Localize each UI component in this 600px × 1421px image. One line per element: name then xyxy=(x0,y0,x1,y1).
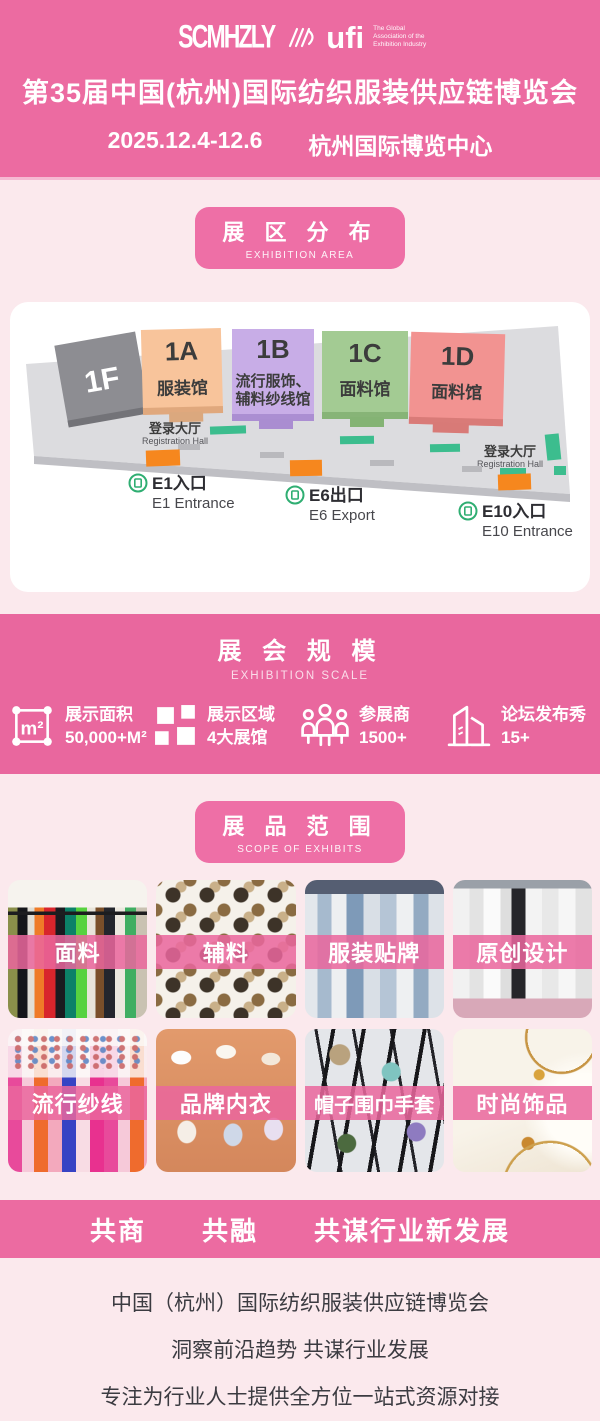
stat-text: 参展商 1500+ xyxy=(359,703,410,749)
header-banner: SCMHZLY ufi The Global Association of th… xyxy=(0,0,600,180)
svg-text:面料馆: 面料馆 xyxy=(340,379,391,399)
floor-map: 1F 1A 服装馆 1B 流行服饰、 辅料纱线馆 1C 面料馆 xyxy=(10,302,590,592)
hall-1d: 1D 面料馆 xyxy=(409,332,506,434)
svg-text:面料馆: 面料馆 xyxy=(431,381,483,402)
forum-shows-icon xyxy=(446,703,492,749)
exhibit-tile-fashion-jewelry: 时尚饰品 xyxy=(453,1029,592,1172)
ufi-logo: ufi xyxy=(326,22,364,53)
tile-label: 原创设计 xyxy=(453,935,592,969)
exhibit-tiles-grid: 面料 辅料 服装贴牌 原创设计 流行纱线 品牌内衣 帽子围巾手套 时尚饰品 xyxy=(0,880,600,1172)
svg-text:登录大厅: 登录大厅 xyxy=(148,421,201,436)
svg-text:1F: 1F xyxy=(82,361,122,400)
svg-text:流行服饰、: 流行服饰、 xyxy=(235,372,310,390)
e1-gate-icon xyxy=(130,475,147,492)
exhibit-tile-fabric: 面料 xyxy=(8,880,147,1018)
stat-text: 论坛发布秀 15+ xyxy=(501,703,586,749)
area-measure-icon: m² xyxy=(8,702,56,750)
date-venue-row: 2025.12.4-12.6 杭州国际博览中心 xyxy=(0,127,600,161)
exhibitors-icon xyxy=(300,702,350,750)
section-title-en: SCOPE OF EXHIBITS xyxy=(222,844,377,855)
stat-label: 展示面积 xyxy=(65,703,147,726)
swoosh-icon xyxy=(287,25,317,49)
tile-label: 品牌内衣 xyxy=(156,1086,295,1120)
e1-entrance-marker xyxy=(146,449,181,466)
stat-value: 4大展馆 xyxy=(207,726,275,749)
ufi-tagline-line1: The Global xyxy=(373,25,426,33)
stat-exhibit-area: m² 展示面积 50,000+M² xyxy=(8,702,154,750)
svg-text:E10入口: E10入口 xyxy=(482,502,546,521)
slogan-banner: 共商 共融 共谋行业新发展 xyxy=(0,1200,600,1258)
tile-label: 面料 xyxy=(8,935,147,969)
scale-title-en: EXHIBITION SCALE xyxy=(0,670,600,682)
tile-label: 服装贴牌 xyxy=(305,935,444,969)
exhibition-halls-icon xyxy=(154,704,198,748)
svg-text:E1入口: E1入口 xyxy=(152,474,207,493)
ufi-tagline-line2: Association of the xyxy=(373,33,426,41)
svg-text:1B: 1B xyxy=(256,334,289,364)
stat-exhibitors: 参展商 1500+ xyxy=(300,702,446,750)
svg-text:E1 Entrance: E1 Entrance xyxy=(152,495,235,512)
registration-hall-right: 登录大厅 Registration Hall xyxy=(477,444,543,469)
expo-dates: 2025.12.4-12.6 xyxy=(108,127,263,161)
svg-text:Registration Hall: Registration Hall xyxy=(477,459,543,469)
svg-text:1C: 1C xyxy=(348,338,381,368)
hall-1f: 1F xyxy=(54,332,149,428)
hall-1c: 1C 面料馆 xyxy=(322,331,408,427)
exhibit-tile-hats-scarves-gloves: 帽子围巾手套 xyxy=(305,1029,444,1172)
svg-text:m²: m² xyxy=(21,717,44,738)
svg-text:辅料纱线馆: 辅料纱线馆 xyxy=(235,390,310,408)
ufi-tagline-line3: Exhibition Industry xyxy=(373,41,426,49)
section-title-cn: 展 品 范 围 xyxy=(222,809,377,841)
scmhzly-logo: SCMHZLY xyxy=(178,18,274,56)
svg-text:服装馆: 服装馆 xyxy=(157,377,209,398)
expo-venue: 杭州国际博览中心 xyxy=(308,127,492,161)
section-badge-exhibition-area: 展 区 分 布 EXHIBITION AREA xyxy=(195,207,404,269)
section-title-cn: 展 区 分 布 xyxy=(222,215,377,247)
footer-line-3: 专注为行业人士提供全方位一站式资源对接 xyxy=(0,1374,600,1421)
ufi-tagline: The Global Association of the Exhibition… xyxy=(373,25,426,49)
stat-forums: 论坛发布秀 15+ xyxy=(446,703,592,749)
exhibit-tile-accessories: 辅料 xyxy=(156,880,295,1018)
stat-value: 50,000+M² xyxy=(65,726,147,749)
svg-text:E6 Export: E6 Export xyxy=(309,507,376,524)
e10-gate-icon xyxy=(460,503,477,520)
stat-label: 展示区域 xyxy=(207,703,275,726)
e10-entrance-marker xyxy=(498,473,532,490)
svg-text:E6出口: E6出口 xyxy=(309,485,364,505)
logo-row: SCMHZLY ufi The Global Association of th… xyxy=(0,16,600,58)
tile-label: 时尚饰品 xyxy=(453,1086,592,1120)
exhibit-tile-garment-oem: 服装贴牌 xyxy=(305,880,444,1018)
stat-label: 参展商 xyxy=(359,703,410,726)
tile-label: 辅料 xyxy=(156,935,295,969)
stat-label: 论坛发布秀 xyxy=(501,703,586,726)
scale-title-cn: 展 会 规 模 xyxy=(0,631,600,666)
expo-title: 第35届中国(杭州)国际纺织服装供应链博览会 xyxy=(0,71,600,110)
e1-entrance-label: E1入口 E1 Entrance xyxy=(130,474,235,512)
e6-exit-label: E6出口 E6 Export xyxy=(287,485,376,524)
stat-text: 展示面积 50,000+M² xyxy=(65,703,147,749)
exhibit-tile-brand-underwear: 品牌内衣 xyxy=(156,1029,295,1172)
exhibit-tile-fashion-yarn: 流行纱线 xyxy=(8,1029,147,1172)
exhibit-tile-original-design: 原创设计 xyxy=(453,880,592,1018)
registration-hall-left: 登录大厅 Registration Hall xyxy=(142,421,208,446)
e6-exit-marker xyxy=(290,460,322,477)
exhibition-scale-band: 展 会 规 模 EXHIBITION SCALE m² 展示面积 50,000+… xyxy=(0,614,600,774)
svg-text:E10 Entrance: E10 Entrance xyxy=(482,523,573,540)
footer-line-1: 中国（杭州）国际纺织服装供应链博览会 xyxy=(0,1280,600,1327)
stat-exhibit-zones: 展示区域 4大展馆 xyxy=(154,703,300,749)
tile-label: 流行纱线 xyxy=(8,1086,147,1120)
tile-label: 帽子围巾手套 xyxy=(305,1086,444,1120)
floor-map-card: 1F 1A 服装馆 1B 流行服饰、 辅料纱线馆 1C 面料馆 xyxy=(10,302,590,592)
svg-text:1D: 1D xyxy=(441,341,475,372)
section-title-en: EXHIBITION AREA xyxy=(222,250,377,261)
scale-stats-row: m² 展示面积 50,000+M² 展示区域 4大展馆 xyxy=(0,702,600,750)
footer-line-2: 洞察前沿趋势 共谋行业发展 xyxy=(0,1327,600,1374)
e10-entrance-label: E10入口 E10 Entrance xyxy=(460,502,573,540)
stat-value: 1500+ xyxy=(359,726,410,749)
hall-1b: 1B 流行服饰、 辅料纱线馆 xyxy=(232,329,314,429)
e6-gate-icon xyxy=(287,487,304,504)
stat-value: 15+ xyxy=(501,726,586,749)
stat-text: 展示区域 4大展馆 xyxy=(207,703,275,749)
hall-1a: 1A 服装馆 xyxy=(141,328,223,423)
section-badge-scope-of-exhibits: 展 品 范 围 SCOPE OF EXHIBITS xyxy=(195,801,404,863)
svg-text:登录大厅: 登录大厅 xyxy=(483,444,536,459)
svg-text:1A: 1A xyxy=(164,336,198,367)
